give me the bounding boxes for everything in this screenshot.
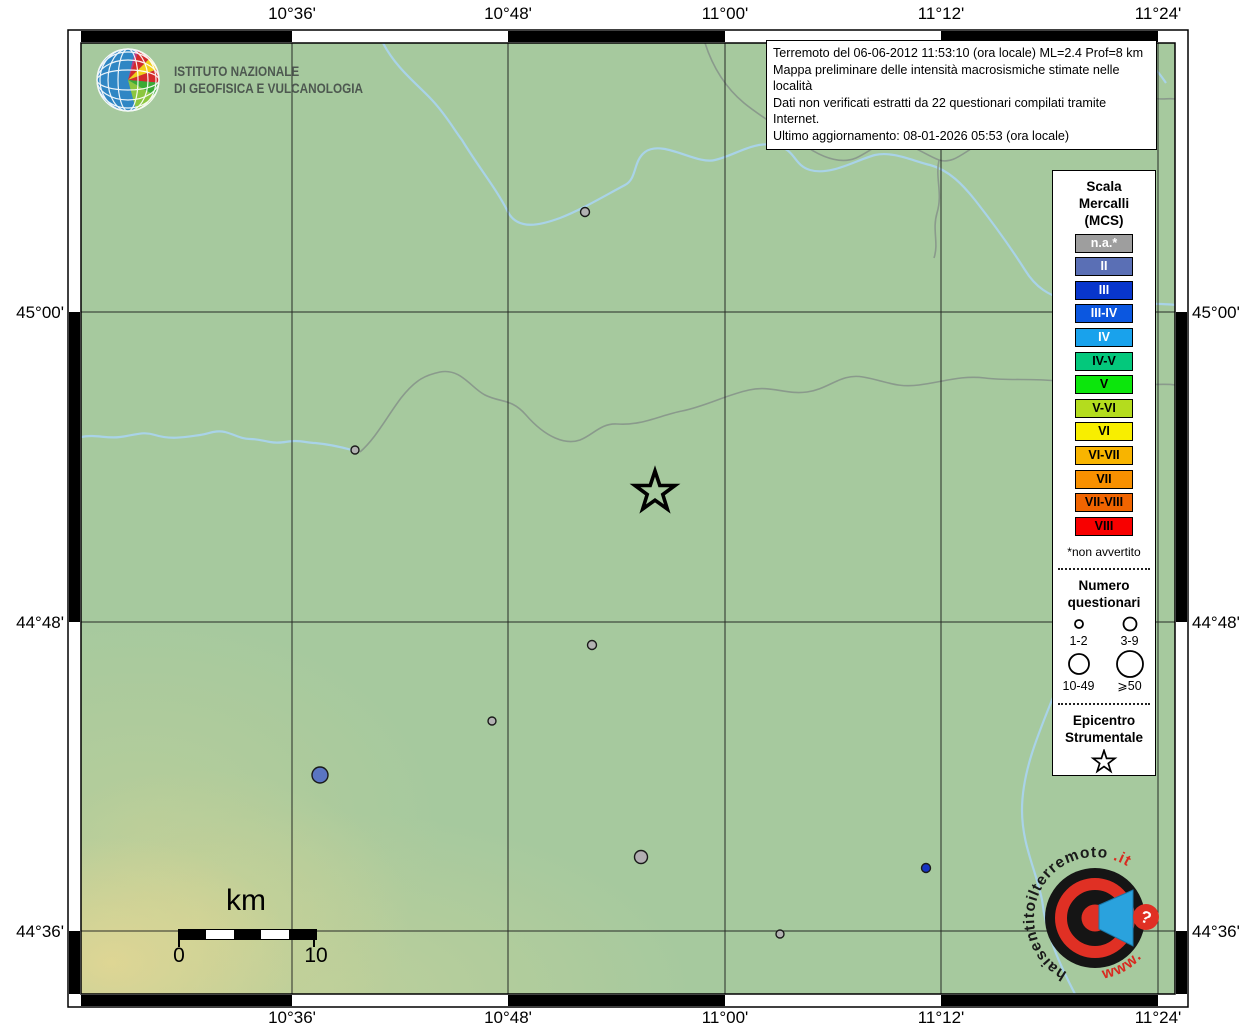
info-line-updated: Ultimo aggiornamento: 08-01-2026 05:53 (… xyxy=(773,128,1150,145)
axis-label-top: 11°12' xyxy=(918,4,965,24)
axis-label-left: 44°48' xyxy=(0,613,64,633)
axis-label-bottom: 11°12' xyxy=(918,1008,965,1024)
questionnaire-circle-icon xyxy=(1113,649,1147,679)
scalebar xyxy=(178,929,317,940)
scalebar-segment xyxy=(179,930,206,939)
axis-label-left: 45°00' xyxy=(0,303,64,323)
intensity-marker-n.a. xyxy=(581,208,590,217)
ingv-name-line2: DI GEOFISICA E VULCANOLOGIA xyxy=(174,80,363,97)
axis-label-bottom: 10°48' xyxy=(484,1008,532,1024)
questionnaires-title: questionari xyxy=(1053,594,1155,611)
axis-label-left: 44°36' xyxy=(0,922,64,942)
questionnaire-size-legend: 1-2 3-9 10-49 ⩾50 xyxy=(1053,614,1155,694)
questionnaire-circle-icon xyxy=(1062,649,1096,679)
info-line-mapdesc: Mappa preliminare delle intensità macros… xyxy=(773,62,1150,95)
info-line-source: Dati non verificati estratti da 22 quest… xyxy=(773,95,1150,128)
axis-label-bottom: 11°00' xyxy=(702,1008,749,1024)
epicenter-star xyxy=(635,471,675,509)
legend-item-VII: VII xyxy=(1075,470,1133,489)
ingv-globe-icon xyxy=(94,46,162,114)
epicenter-title: Epicentro xyxy=(1053,712,1155,729)
epicenter-title: Strumentale xyxy=(1053,729,1155,746)
intensity-marker-n.a. xyxy=(488,717,496,725)
questionnaire-class: 3-9 xyxy=(1104,614,1155,649)
intensity-marker-n.a. xyxy=(635,851,648,864)
scalebar-end: 10 xyxy=(304,944,327,968)
map-features-layer xyxy=(81,43,1175,994)
legend-title: Mercalli xyxy=(1053,195,1155,212)
graticule-grid xyxy=(81,43,1175,994)
questionnaire-class-label: 1-2 xyxy=(1069,634,1087,649)
axis-label-bottom: 10°36' xyxy=(268,1008,316,1024)
intensity-marker-III xyxy=(922,864,931,873)
scalebar-segment xyxy=(234,930,261,939)
questionnaire-circle-icon xyxy=(1062,614,1096,634)
legend-item-III: III xyxy=(1075,281,1133,300)
legend-footnote: *non avvertito xyxy=(1053,545,1155,559)
axis-label-right: 45°00' xyxy=(1192,303,1240,323)
axis-label-right: 44°36' xyxy=(1192,922,1240,942)
questionnaire-class-label: ⩾50 xyxy=(1117,679,1141,694)
axis-label-top: 11°00' xyxy=(702,4,749,24)
axis-label-right: 44°48' xyxy=(1192,613,1240,633)
axis-label-top: 10°36' xyxy=(268,4,316,24)
map-area xyxy=(81,43,1175,994)
legend-item-n.a.*: n.a.* xyxy=(1075,234,1133,253)
legend-item-II: II xyxy=(1075,257,1133,276)
info-line-event: Terremoto del 06-06-2012 11:53:10 (ora l… xyxy=(773,45,1150,62)
legend-item-IV: IV xyxy=(1075,328,1133,347)
scalebar-segment xyxy=(206,930,233,939)
event-info-box: Terremoto del 06-06-2012 11:53:10 (ora l… xyxy=(766,40,1157,150)
ingv-logo: ISTITUTO NAZIONALE DI GEOFISICA E VULCAN… xyxy=(94,46,399,114)
axis-label-top: 11°24' xyxy=(1135,4,1182,24)
legend-item-V: V xyxy=(1075,375,1133,394)
legend-panel: Scala Mercalli (MCS) n.a.*IIIIIIII-IVIVI… xyxy=(1052,170,1156,776)
intensity-marker-n.a. xyxy=(776,930,784,938)
legend-item-III-IV: III-IV xyxy=(1075,304,1133,323)
axis-label-top: 10°48' xyxy=(484,4,532,24)
legend-item-VIII: VIII xyxy=(1075,517,1133,536)
questionnaires-title: Numero xyxy=(1053,577,1155,594)
questionnaire-class: ⩾50 xyxy=(1104,649,1155,694)
intensity-marker-II xyxy=(312,767,328,783)
ingv-name: ISTITUTO NAZIONALE DI GEOFISICA E VULCAN… xyxy=(174,63,363,97)
intensity-marker-n.a. xyxy=(588,641,597,650)
legend-item-VI: VI xyxy=(1075,422,1133,441)
scalebar-start: 0 xyxy=(173,944,185,968)
intensity-marker-n.a. xyxy=(351,446,359,454)
questionnaire-class: 1-2 xyxy=(1053,614,1104,649)
river-lines xyxy=(81,43,1175,994)
legend-divider xyxy=(1058,703,1150,705)
questionnaire-circle-icon xyxy=(1113,614,1147,634)
scalebar-unit: km xyxy=(226,884,266,918)
legend-item-IV-V: IV-V xyxy=(1075,352,1133,371)
haisentitoilterremoto-logo: ? haisentitoilterremoto .it www. xyxy=(1020,842,1172,994)
legend-title: Scala xyxy=(1053,178,1155,195)
axis-label-bottom: 11°24' xyxy=(1135,1008,1182,1024)
questionnaire-class-label: 3-9 xyxy=(1120,634,1138,649)
watermark-arc-suffix: .it xyxy=(1111,847,1134,870)
legend-title: (MCS) xyxy=(1053,212,1155,229)
legend-item-VII-VIII: VII-VIII xyxy=(1075,493,1133,512)
questionnaire-class: 10-49 xyxy=(1053,649,1104,694)
ingv-name-line1: ISTITUTO NAZIONALE xyxy=(174,63,363,80)
legend-divider xyxy=(1058,568,1150,570)
macroseismic-map-canvas: 10°36' 10°48' 11°00' 11°12' 11°24' 10°36… xyxy=(0,0,1256,1024)
scalebar-segment xyxy=(261,930,288,939)
intensity-markers-layer xyxy=(312,208,931,939)
epicenter-star-icon xyxy=(1090,749,1118,775)
scalebar-segment xyxy=(289,930,316,939)
mercalli-scale-items: n.a.*IIIIIIII-IVIVIV-VVV-VIVIVI-VIIVIIVI… xyxy=(1053,234,1155,536)
legend-item-VI-VII: VI-VII xyxy=(1075,446,1133,465)
legend-item-V-VI: V-VI xyxy=(1075,399,1133,418)
questionnaire-class-label: 10-49 xyxy=(1063,679,1095,694)
